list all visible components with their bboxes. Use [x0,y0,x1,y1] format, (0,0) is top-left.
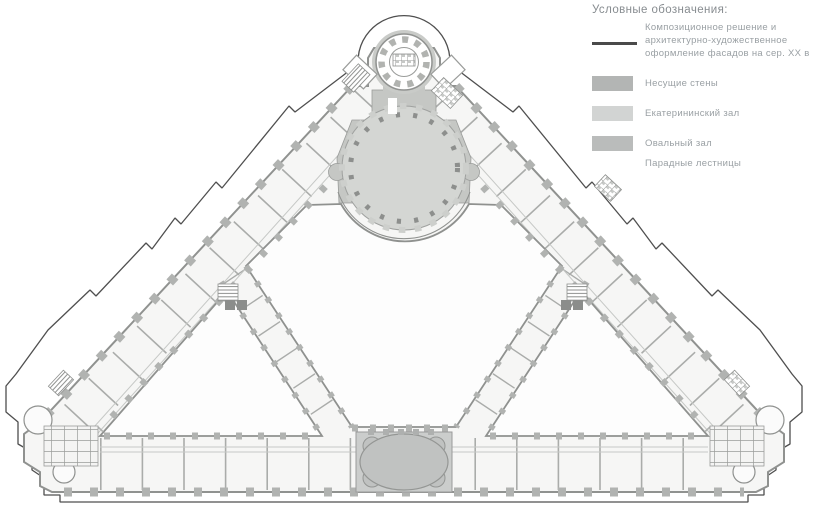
screenshot-root: Условные обозначения: Композиционное реш… [0,0,827,508]
facade-line-swatch [592,42,637,45]
hall-stair-slot [388,98,397,114]
oval-hall-label: Овальный зал [645,138,712,149]
facade-line-label: Композиционное решение и архитектурно-ху… [645,22,810,60]
legend: Условные обозначения: Композиционное реш… [592,0,827,185]
staircase [567,284,587,301]
legend-item-oval-hall: Овальный зал [592,136,827,152]
legend-item-catherine-hall: Екатерининский зал [592,106,827,122]
corner-grid-left [44,426,98,466]
legend-item-staircases: Парадные лестницы [592,156,827,172]
service-core [561,300,571,310]
bearing-walls-label: Несущие стены [645,78,718,89]
rotunda-stair-core [393,54,415,66]
oval-hall-floor [360,434,448,490]
oval-hall-swatch [592,136,633,151]
facade-line-label-1: Композиционное решение и [645,22,810,35]
service-core [225,300,235,310]
service-core [237,300,247,310]
staircases-label: Парадные лестницы [645,158,741,169]
catherine-hall-swatch [592,106,633,121]
facade-line-label-2: архитектурно-художественное [645,35,810,48]
bearing-walls-swatch [592,76,633,91]
service-core [573,300,583,310]
staircase [218,284,238,301]
legend-item-bearing-walls: Несущие стены [592,76,827,92]
catherine-hall-label: Екатерининский зал [645,108,739,119]
corner-grid-right [710,426,764,466]
oval-hall [356,432,452,492]
legend-title: Условные обозначения: [592,4,728,16]
facade-line-label-3: оформление фасадов на сер. XX в [645,48,810,61]
